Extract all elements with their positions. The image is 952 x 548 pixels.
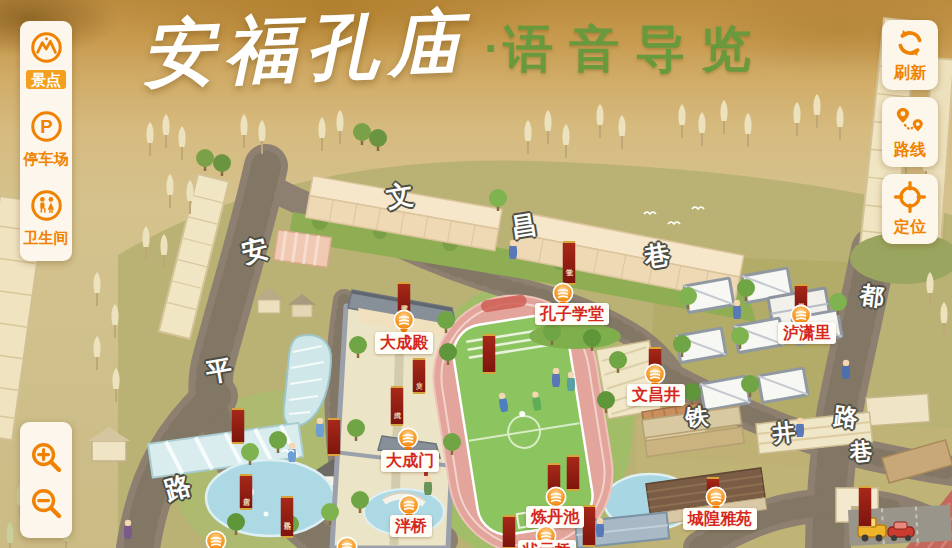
audio-marker[interactable] (552, 282, 574, 304)
poi-label[interactable]: 泸潇里 (778, 322, 836, 344)
audio-marker[interactable] (336, 536, 358, 548)
sidebar-item-label: 停车场 (24, 149, 69, 168)
parking-icon: P (30, 110, 63, 143)
map-canvas[interactable] (0, 0, 952, 548)
poi-label[interactable]: 大成殿 (375, 332, 433, 354)
sidebar-item-restroom[interactable]: 卫生间 (24, 189, 69, 247)
sidebar-item-parking[interactable]: P停车场 (24, 110, 69, 168)
poi-label[interactable]: 泮桥 (390, 515, 432, 537)
left-toolbar: 景点P停车场卫生间 (20, 21, 72, 261)
sidebar-item-scenic[interactable]: 景点 (26, 31, 66, 89)
audio-marker[interactable] (545, 486, 567, 508)
audio-marker[interactable] (398, 494, 420, 516)
zoom-out-icon (29, 506, 63, 523)
voice-guide-map-app: 大成殿孔子学堂泸潇里文昌井文庙大成门杂货店民俗广场 文昌巷安平路铁井巷都路 大成… (0, 0, 952, 548)
map-control-route[interactable]: 路线 (882, 97, 938, 167)
map-control-label: 定位 (894, 217, 926, 238)
zoom-in-icon (29, 460, 63, 477)
poi-label[interactable]: 状元桥 (518, 540, 576, 548)
audio-marker[interactable] (705, 486, 727, 508)
refresh-icon (893, 26, 927, 60)
route-icon (893, 103, 927, 137)
zoom-out-button[interactable] (29, 486, 63, 520)
poi-label[interactable]: 大成门 (381, 450, 439, 472)
svg-text:P: P (40, 116, 52, 137)
audio-marker[interactable] (397, 427, 419, 449)
map-control-refresh[interactable]: 刷新 (882, 20, 938, 90)
zoom-controls (20, 422, 72, 538)
map-control-locate[interactable]: 定位 (882, 174, 938, 244)
locate-icon (893, 180, 927, 214)
audio-marker[interactable] (205, 530, 227, 548)
scenic-spot-icon (30, 31, 63, 64)
poi-label[interactable]: 孔子学堂 (535, 303, 609, 325)
audio-marker[interactable] (393, 309, 415, 331)
zoom-in-button[interactable] (29, 440, 63, 474)
map-control-label: 路线 (894, 140, 926, 161)
right-toolbar: 刷新路线定位 (882, 20, 938, 251)
poi-label[interactable]: 城隍雅苑 (683, 508, 757, 530)
restroom-icon (30, 189, 63, 222)
map-control-label: 刷新 (894, 63, 926, 84)
audio-marker[interactable] (644, 363, 666, 385)
poi-label[interactable]: 文昌井 (627, 384, 685, 406)
sidebar-item-label: 卫生间 (24, 228, 69, 247)
sidebar-item-label: 景点 (26, 70, 66, 89)
